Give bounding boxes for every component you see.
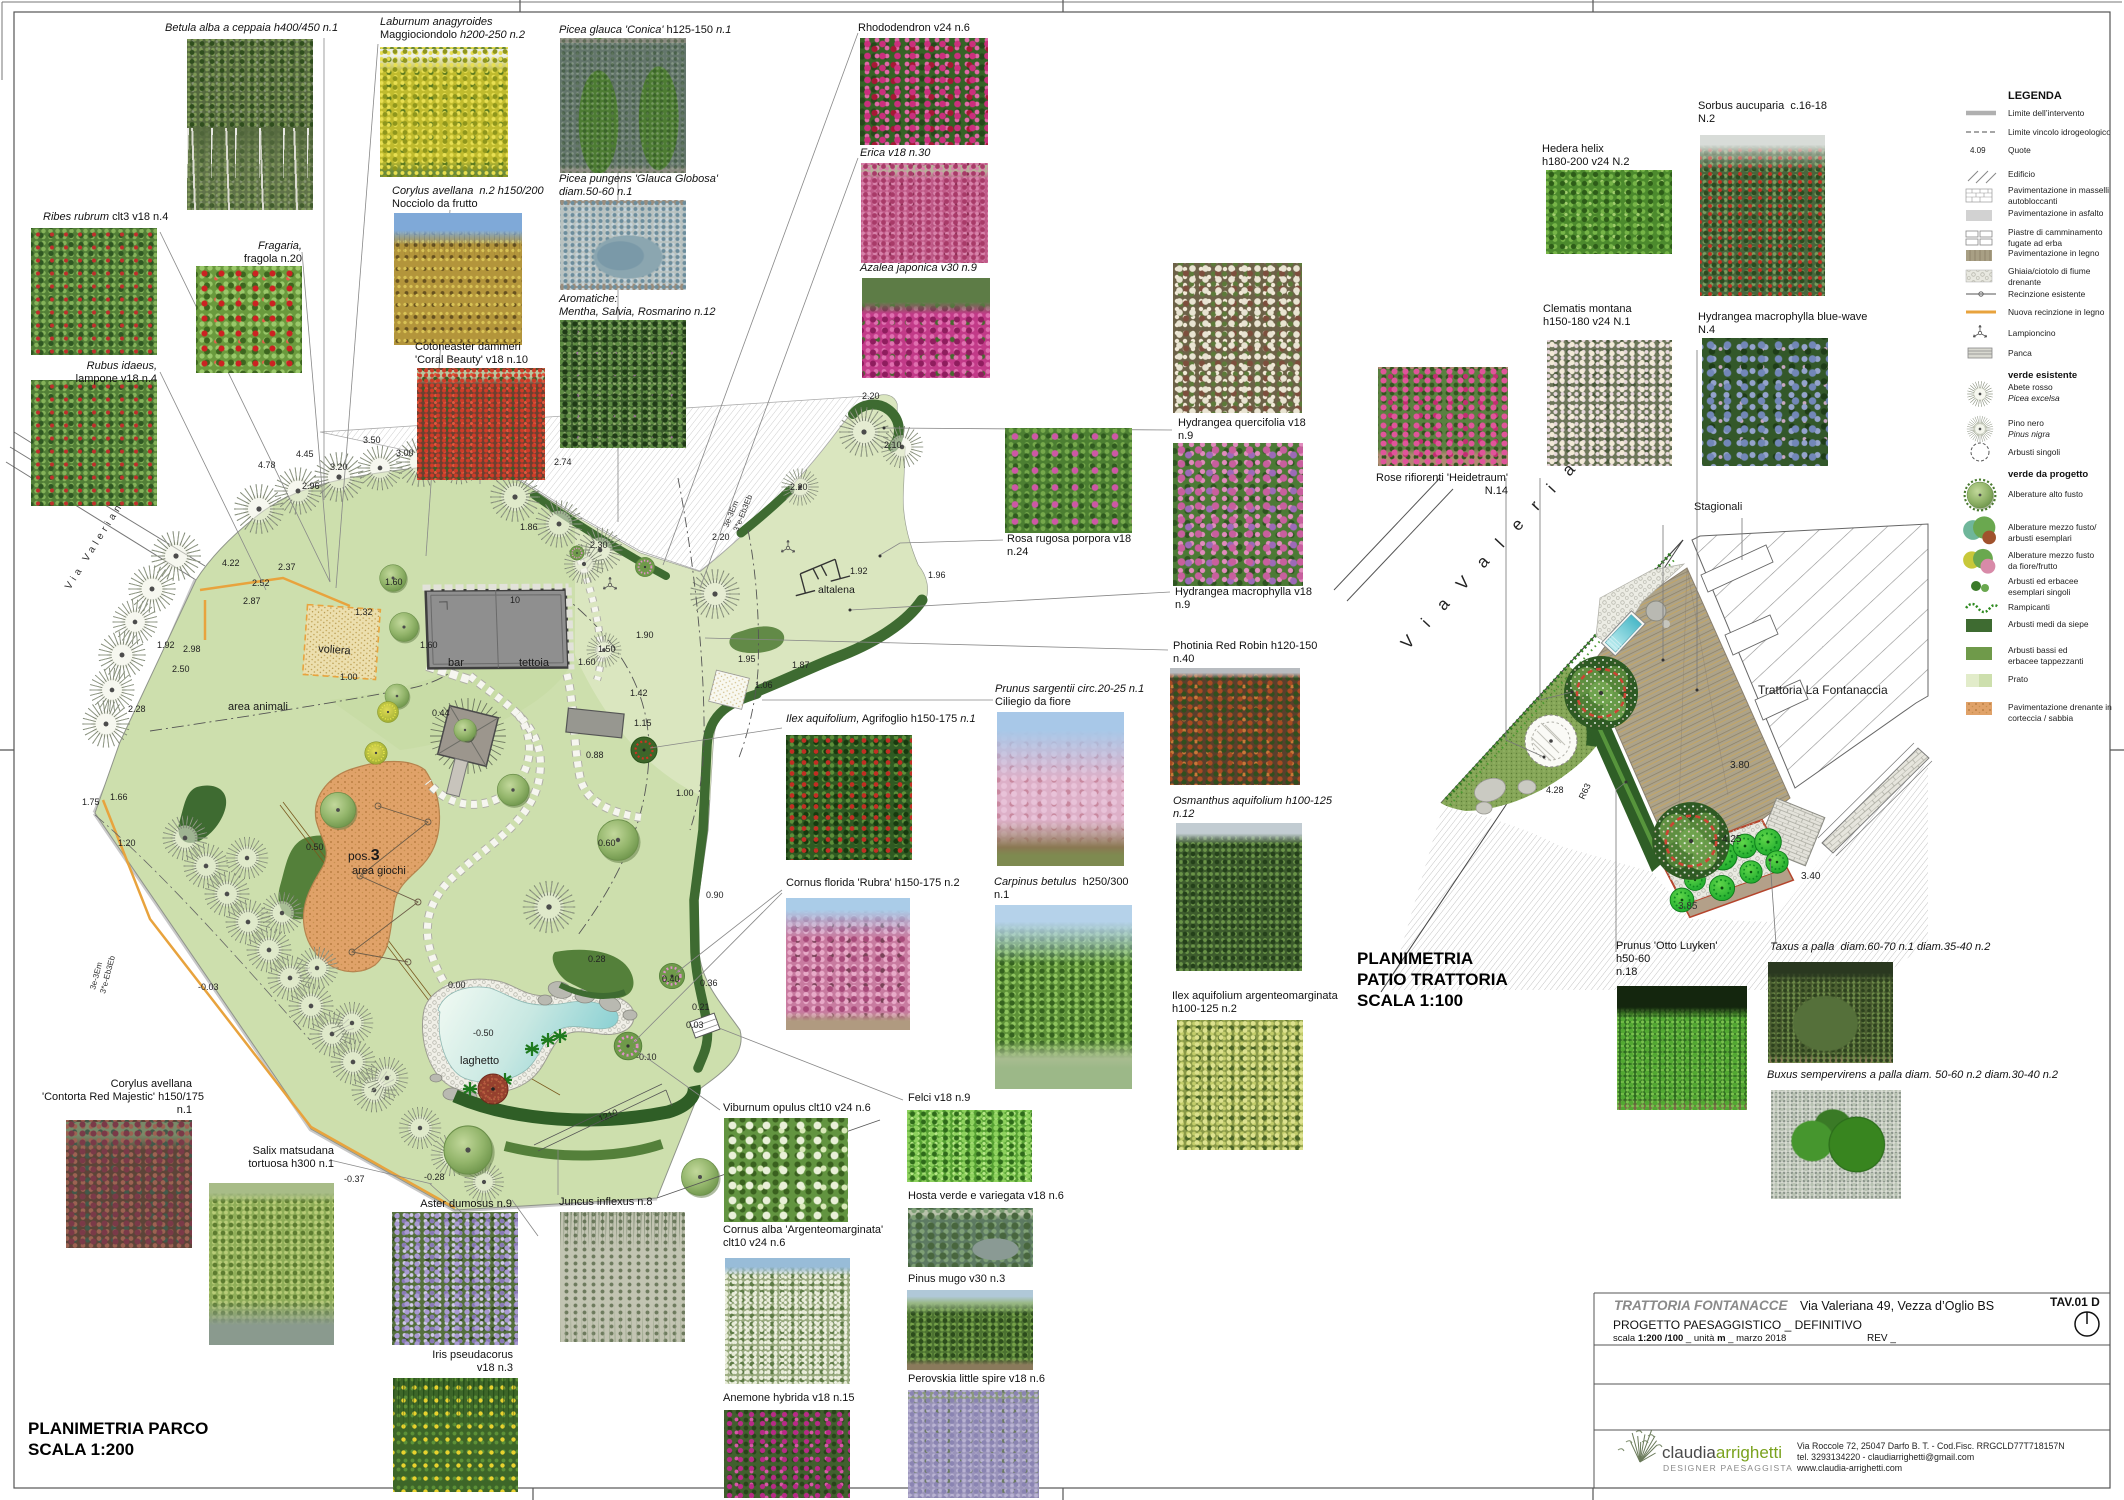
- svg-text:2.96: 2.96: [302, 481, 320, 491]
- svg-text:Ghiaia/ciotolo di fiume: Ghiaia/ciotolo di fiume: [2008, 266, 2091, 276]
- svg-text:1.75: 1.75: [82, 797, 100, 807]
- svg-text:drenante: drenante: [2008, 277, 2041, 287]
- svg-text:corteccia / sabbia: corteccia / sabbia: [2008, 713, 2074, 723]
- svg-text:0.90: 0.90: [706, 890, 724, 900]
- svg-text:-0.03: -0.03: [198, 982, 219, 992]
- svg-text:Nuova recinzione in legno: Nuova recinzione in legno: [2008, 307, 2105, 317]
- svg-text:area animali: area animali: [228, 701, 288, 713]
- svg-text:Via Valeriana 49, Vezza d’Ogli: Via Valeriana 49, Vezza d’Oglio BS: [1800, 1299, 1994, 1313]
- svg-text:1.06: 1.06: [755, 680, 773, 690]
- svg-text:3.00: 3.00: [396, 448, 414, 458]
- svg-text:1.96: 1.96: [928, 570, 946, 580]
- svg-text:0.44: 0.44: [432, 708, 450, 718]
- svg-text:1.00: 1.00: [340, 672, 358, 682]
- svg-text:1.15: 1.15: [634, 718, 652, 728]
- svg-text:0.03: 0.03: [686, 1020, 704, 1030]
- svg-text:0.60: 0.60: [598, 838, 616, 848]
- svg-text:REV _: REV _: [1867, 1333, 1896, 1344]
- svg-text:2.20: 2.20: [862, 391, 880, 401]
- svg-text:1.20: 1.20: [118, 838, 136, 848]
- svg-text:Limite dell’intervento: Limite dell’intervento: [2008, 108, 2085, 118]
- svg-text:autobloccanti: autobloccanti: [2008, 196, 2057, 206]
- svg-text:1.86: 1.86: [520, 522, 538, 532]
- svg-text:10: 10: [510, 595, 520, 605]
- svg-text:2.98: 2.98: [183, 644, 201, 654]
- svg-text:PROGETTO PAESAGGISTICO _ DEFIN: PROGETTO PAESAGGISTICO _ DEFINITIVO: [1613, 1318, 1862, 1332]
- svg-text:Via Roccole 72, 25047 Darfo B.: Via Roccole 72, 25047 Darfo B. T. - Cod.…: [1797, 1441, 2065, 1451]
- svg-text:-0.28: -0.28: [424, 1172, 445, 1182]
- svg-text:scala 1:200 /100 _ unità m _ m: scala 1:200 /100 _ unità m _ marzo 2018: [1613, 1333, 1786, 1344]
- svg-text:Pavimentazione in legno: Pavimentazione in legno: [2008, 248, 2100, 258]
- svg-text:altalena: altalena: [818, 584, 855, 596]
- svg-text:erbacee tappezzanti: erbacee tappezzanti: [2008, 656, 2084, 666]
- svg-text:1.60: 1.60: [385, 577, 403, 587]
- svg-text:tel. 3293134220 - claudiarrigh: tel. 3293134220 - claudiarrighetti@gmail…: [1797, 1452, 1974, 1462]
- svg-text:4.28: 4.28: [1546, 785, 1564, 795]
- svg-text:verde da progetto: verde da progetto: [2008, 469, 2088, 480]
- svg-text:R63: R63: [1577, 782, 1593, 801]
- svg-text:3.80: 3.80: [1730, 760, 1750, 771]
- svg-text:verde esistente: verde esistente: [2008, 370, 2077, 381]
- svg-text:arbusti esemplari: arbusti esemplari: [2008, 533, 2072, 543]
- svg-text:Lampioncino: Lampioncino: [2008, 328, 2056, 338]
- svg-text:1.50: 1.50: [598, 644, 616, 654]
- svg-text:Alberature alto fusto: Alberature alto fusto: [2008, 489, 2083, 499]
- svg-text:fugate ad erba: fugate ad erba: [2008, 238, 2062, 248]
- svg-text:Pavimentazione in masselli: Pavimentazione in masselli: [2008, 185, 2109, 195]
- svg-text:4.45: 4.45: [296, 449, 314, 459]
- svg-text:1.60: 1.60: [578, 657, 596, 667]
- svg-text:1.92: 1.92: [850, 566, 868, 576]
- svg-text:tettoia: tettoia: [519, 657, 550, 669]
- svg-text:Alberature mezzo fusto: Alberature mezzo fusto: [2008, 550, 2094, 560]
- svg-text:4.22: 4.22: [222, 558, 240, 568]
- svg-text:Piastre di camminamento: Piastre di camminamento: [2008, 227, 2103, 237]
- svg-text:2.20: 2.20: [712, 532, 730, 542]
- svg-text:1.60: 1.60: [420, 640, 438, 650]
- svg-text:1.95: 1.95: [738, 654, 756, 664]
- svg-text:4.25: 4.25: [1722, 834, 1742, 845]
- svg-text:Trattoria La Fontanaccia: Trattoria La Fontanaccia: [1758, 683, 1888, 697]
- svg-text:Pinus nigra: Pinus nigra: [2008, 429, 2050, 439]
- svg-text:0.88: 0.88: [586, 750, 604, 760]
- svg-text:0.00: 0.00: [448, 980, 466, 990]
- svg-text:0.50: 0.50: [306, 842, 324, 852]
- svg-text:3.40: 3.40: [1801, 871, 1821, 882]
- svg-text:DESIGNER PAESAGGISTA: DESIGNER PAESAGGISTA: [1663, 1463, 1793, 1473]
- svg-text:TRATTORIA FONTANACCE: TRATTORIA FONTANACCE: [1614, 1298, 1788, 1313]
- svg-text:0.21: 0.21: [692, 1002, 710, 1012]
- svg-text:3.50: 3.50: [363, 435, 381, 445]
- svg-text:1.90: 1.90: [636, 630, 654, 640]
- svg-text:Panca: Panca: [2008, 348, 2032, 358]
- svg-text:2.37: 2.37: [278, 562, 296, 572]
- svg-text:Prato: Prato: [2008, 674, 2028, 684]
- svg-text:Quote: Quote: [2008, 145, 2031, 155]
- svg-text:Arbusti singoli: Arbusti singoli: [2008, 447, 2060, 457]
- svg-text:0.36: 0.36: [700, 978, 718, 988]
- svg-text:Pavimentazione drenante in: Pavimentazione drenante in: [2008, 702, 2112, 712]
- svg-text:esemplari singoli: esemplari singoli: [2008, 587, 2071, 597]
- svg-text:Recinzione esistente: Recinzione esistente: [2008, 289, 2086, 299]
- svg-text:bar: bar: [448, 657, 464, 669]
- svg-text:1.32: 1.32: [355, 607, 373, 617]
- svg-text:laghetto: laghetto: [460, 1055, 499, 1067]
- svg-text:www.claudia-arrighetti.com: www.claudia-arrighetti.com: [1796, 1463, 1902, 1473]
- svg-text:Pino nero: Pino nero: [2008, 418, 2044, 428]
- svg-text:2.30: 2.30: [590, 540, 608, 550]
- svg-text:TAV.01 D: TAV.01 D: [2050, 1295, 2100, 1309]
- svg-text:3.85: 3.85: [1678, 901, 1698, 912]
- svg-text:Via Valeriana: Via Valeriana: [63, 492, 131, 592]
- svg-text:Arbusti ed erbacee: Arbusti ed erbacee: [2008, 576, 2079, 586]
- svg-text:1.00: 1.00: [676, 788, 694, 798]
- svg-text:1.92: 1.92: [157, 640, 175, 650]
- svg-text:Rampicanti: Rampicanti: [2008, 602, 2050, 612]
- svg-text:pos.3: pos.3: [348, 847, 380, 864]
- svg-text:da fiore/frutto: da fiore/frutto: [2008, 561, 2058, 571]
- svg-text:2.20: 2.20: [790, 482, 808, 492]
- svg-text:claudiaarrighetti: claudiaarrighetti: [1662, 1443, 1782, 1462]
- svg-text:LEGENDA: LEGENDA: [2008, 90, 2062, 102]
- svg-text:area giochi: area giochi: [352, 865, 406, 877]
- svg-text:Pavimentazione in asfalto: Pavimentazione in asfalto: [2008, 208, 2104, 218]
- svg-text:-0.37: -0.37: [344, 1174, 365, 1184]
- svg-text:1.66: 1.66: [110, 792, 128, 802]
- svg-text:Abete rosso: Abete rosso: [2008, 382, 2053, 392]
- svg-text:0.28: 0.28: [588, 954, 606, 964]
- svg-text:1.42: 1.42: [630, 688, 648, 698]
- svg-text:Edificio: Edificio: [2008, 169, 2035, 179]
- svg-text:-0.50: -0.50: [473, 1028, 494, 1038]
- svg-text:1.87: 1.87: [792, 660, 810, 670]
- svg-text:Stagionali: Stagionali: [1694, 501, 1742, 513]
- svg-text:0.40: 0.40: [662, 974, 680, 984]
- svg-text:4.09: 4.09: [1970, 146, 1986, 155]
- svg-text:2.28: 2.28: [128, 704, 146, 714]
- svg-text:Alberature mezzo fusto/: Alberature mezzo fusto/: [2008, 522, 2097, 532]
- svg-text:2.74: 2.74: [554, 457, 572, 467]
- svg-text:Arbusti bassi ed: Arbusti bassi ed: [2008, 645, 2068, 655]
- svg-text:Limite vincolo idrogeologico: Limite vincolo idrogeologico: [2008, 127, 2111, 137]
- svg-text:voliera: voliera: [318, 643, 352, 657]
- svg-text:Picea excelsa: Picea excelsa: [2008, 393, 2060, 403]
- svg-text:2.87: 2.87: [243, 596, 261, 606]
- svg-text:2.50: 2.50: [172, 664, 190, 674]
- svg-text:2.10: 2.10: [884, 440, 902, 450]
- svg-text:Arbusti medi da siepe: Arbusti medi da siepe: [2008, 619, 2089, 629]
